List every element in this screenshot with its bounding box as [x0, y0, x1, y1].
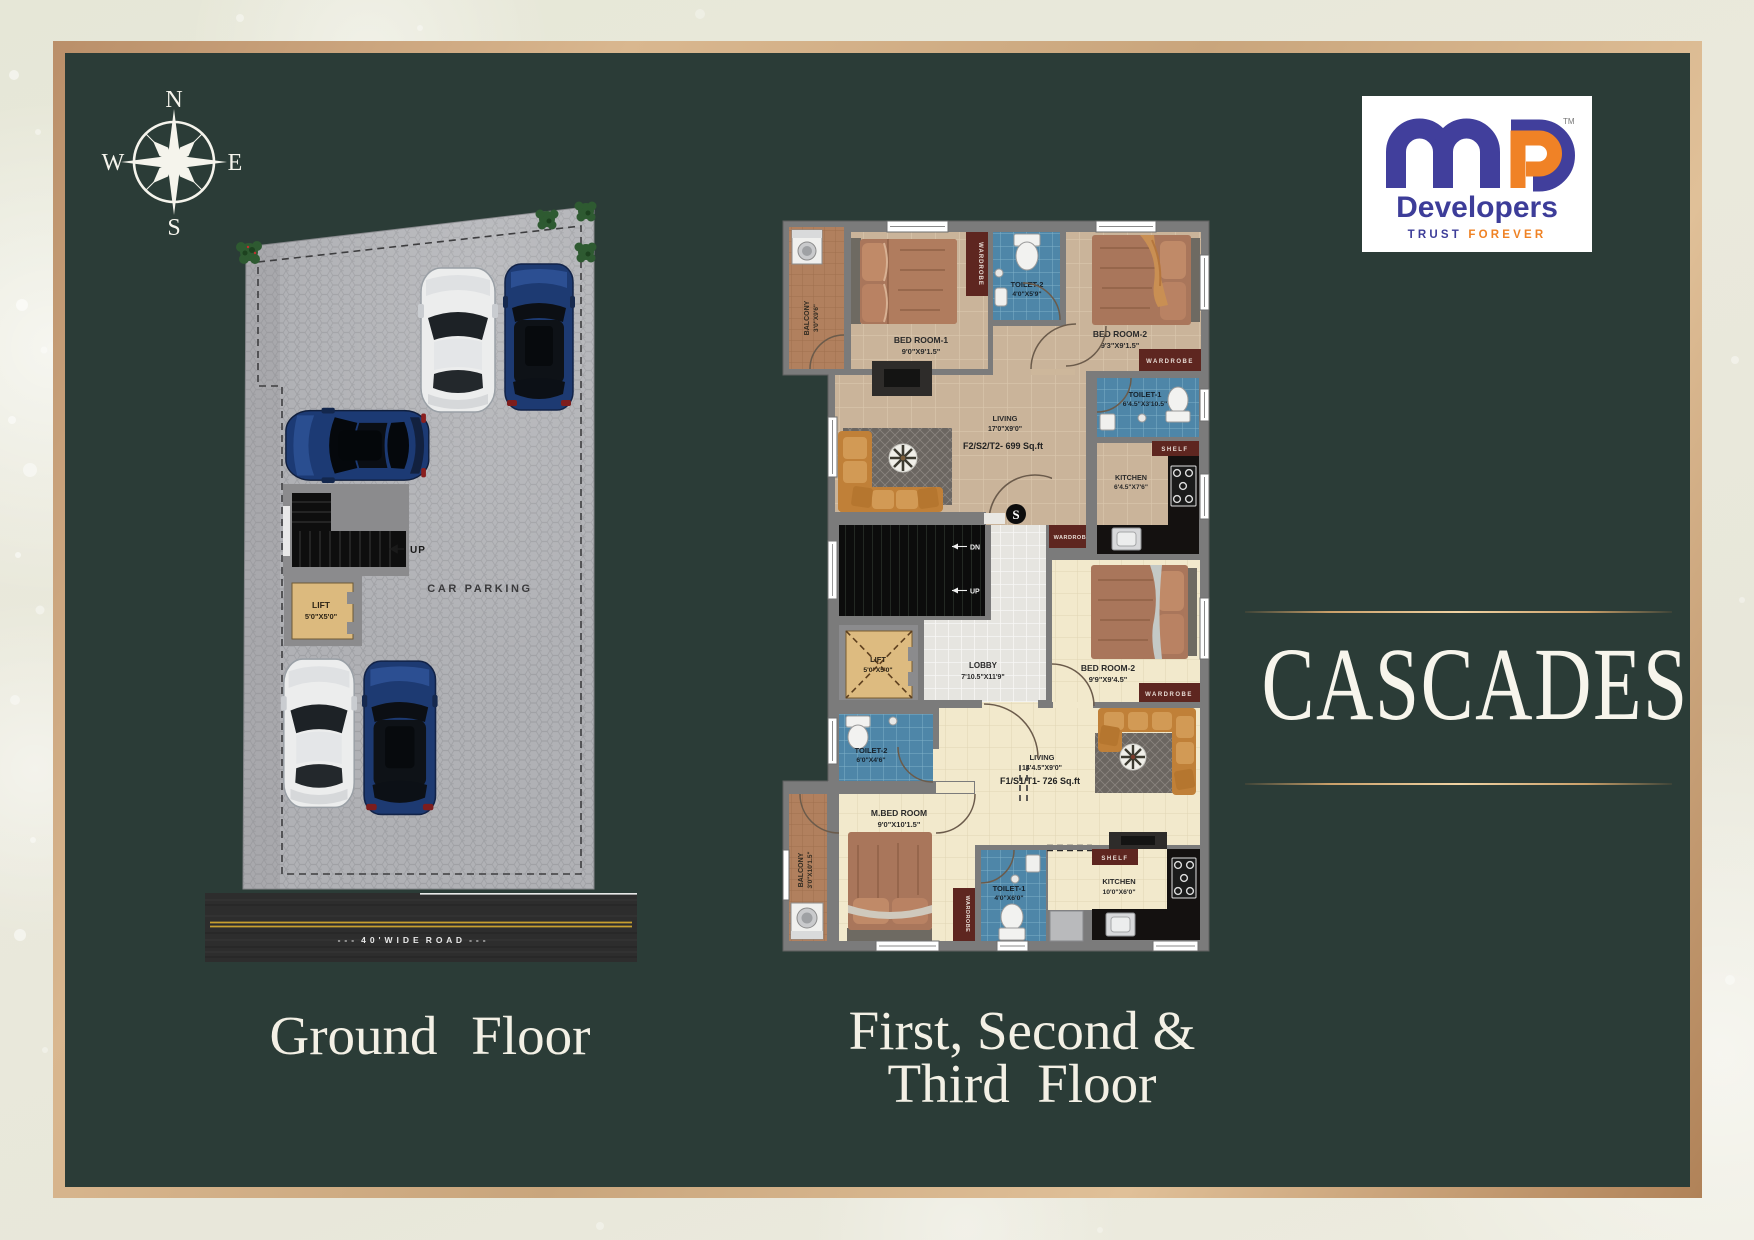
svg-text:F2/S2/T2- 699 Sq.ft: F2/S2/T2- 699 Sq.ft	[963, 441, 1043, 451]
svg-text:BED ROOM-2: BED ROOM-2	[1081, 663, 1136, 673]
svg-text:S: S	[1012, 507, 1019, 522]
svg-text:Developers: Developers	[1396, 191, 1558, 224]
svg-text:6'0"X4'6": 6'0"X4'6"	[856, 757, 885, 764]
svg-text:UP: UP	[410, 545, 426, 556]
svg-text:LIVING: LIVING	[1029, 753, 1054, 762]
svg-text:5'0"X5'0": 5'0"X5'0"	[863, 667, 892, 674]
svg-text:UP: UP	[970, 589, 980, 596]
svg-text:F1/S1/T1- 726 Sq.ft: F1/S1/T1- 726 Sq.ft	[1000, 776, 1080, 786]
svg-text:BALCONY: BALCONY	[798, 852, 805, 887]
svg-text:4'0"X6'0": 4'0"X6'0"	[994, 895, 1023, 902]
svg-text:N: N	[165, 87, 182, 113]
svg-text:6'4.5"X7'6": 6'4.5"X7'6"	[1114, 484, 1148, 491]
svg-text:6'4.5"X3'10.5": 6'4.5"X3'10.5"	[1123, 401, 1167, 408]
svg-text:DN: DN	[970, 545, 980, 552]
svg-text:E: E	[228, 150, 243, 176]
svg-text:BED ROOM-2: BED ROOM-2	[1093, 329, 1148, 339]
svg-text:14'4.5"X9'0": 14'4.5"X9'0"	[1022, 765, 1062, 772]
svg-text:LIFT: LIFT	[312, 600, 331, 610]
svg-text:BED ROOM-1: BED ROOM-1	[894, 335, 949, 345]
svg-text:CAR PARKING: CAR PARKING	[427, 583, 532, 595]
svg-text:WARDROBE: WARDROBE	[977, 242, 983, 286]
svg-text:3'0"X10'1.5": 3'0"X10'1.5"	[807, 851, 814, 888]
svg-text:- - - 4 0 ' W I D E R O A D: - - - 4 0 ' W I D E R O A D - - -	[338, 935, 487, 945]
svg-text:WARDROBE: WARDROBE	[1146, 359, 1194, 365]
svg-text:9'9"X9'4.5": 9'9"X9'4.5"	[1089, 675, 1128, 684]
svg-text:TOILET-2: TOILET-2	[1011, 280, 1044, 289]
svg-text:S: S	[167, 215, 180, 241]
svg-text:TOILET-1: TOILET-1	[1129, 390, 1162, 399]
svg-text:TOILET-2: TOILET-2	[855, 746, 888, 755]
svg-text:9'0"X9'1.5": 9'0"X9'1.5"	[902, 347, 941, 356]
svg-text:17'0"X9'0": 17'0"X9'0"	[988, 426, 1022, 433]
svg-text:WARDROBE: WARDROBE	[964, 896, 970, 933]
svg-text:WARDROBE: WARDROBE	[1145, 692, 1193, 698]
svg-text:10'0"X6'0": 10'0"X6'0"	[1102, 889, 1135, 896]
svg-text:9'0"X10'1.5": 9'0"X10'1.5"	[878, 820, 921, 829]
svg-text:TOILET-1: TOILET-1	[993, 884, 1026, 893]
svg-text:M.BED ROOM: M.BED ROOM	[871, 808, 927, 818]
svg-text:3'0"X9'6": 3'0"X9'6"	[813, 304, 820, 332]
svg-text:W: W	[102, 150, 125, 176]
svg-text:5'0"X5'0": 5'0"X5'0"	[305, 612, 338, 621]
svg-text:KITCHEN: KITCHEN	[1102, 877, 1135, 886]
svg-text:LIFT: LIFT	[870, 655, 886, 664]
svg-text:SHELF: SHELF	[1161, 447, 1188, 453]
svg-text:BALCONY: BALCONY	[804, 300, 811, 335]
svg-text:9'3"X9'1.5": 9'3"X9'1.5"	[1101, 341, 1140, 350]
svg-text:WARDROBE: WARDROBE	[1054, 535, 1091, 541]
svg-text:TM: TM	[1563, 117, 1575, 126]
svg-text:TRUST FOREVER: TRUST FOREVER	[1408, 229, 1547, 241]
svg-text:KITCHEN: KITCHEN	[1115, 473, 1147, 482]
svg-text:LIVING: LIVING	[992, 414, 1017, 423]
svg-text:7'10.5"X11'9": 7'10.5"X11'9"	[961, 674, 1004, 681]
svg-text:4'0"X5'9": 4'0"X5'9"	[1012, 291, 1041, 298]
svg-text:SHELF: SHELF	[1101, 856, 1128, 862]
svg-text:LOBBY: LOBBY	[969, 661, 998, 670]
